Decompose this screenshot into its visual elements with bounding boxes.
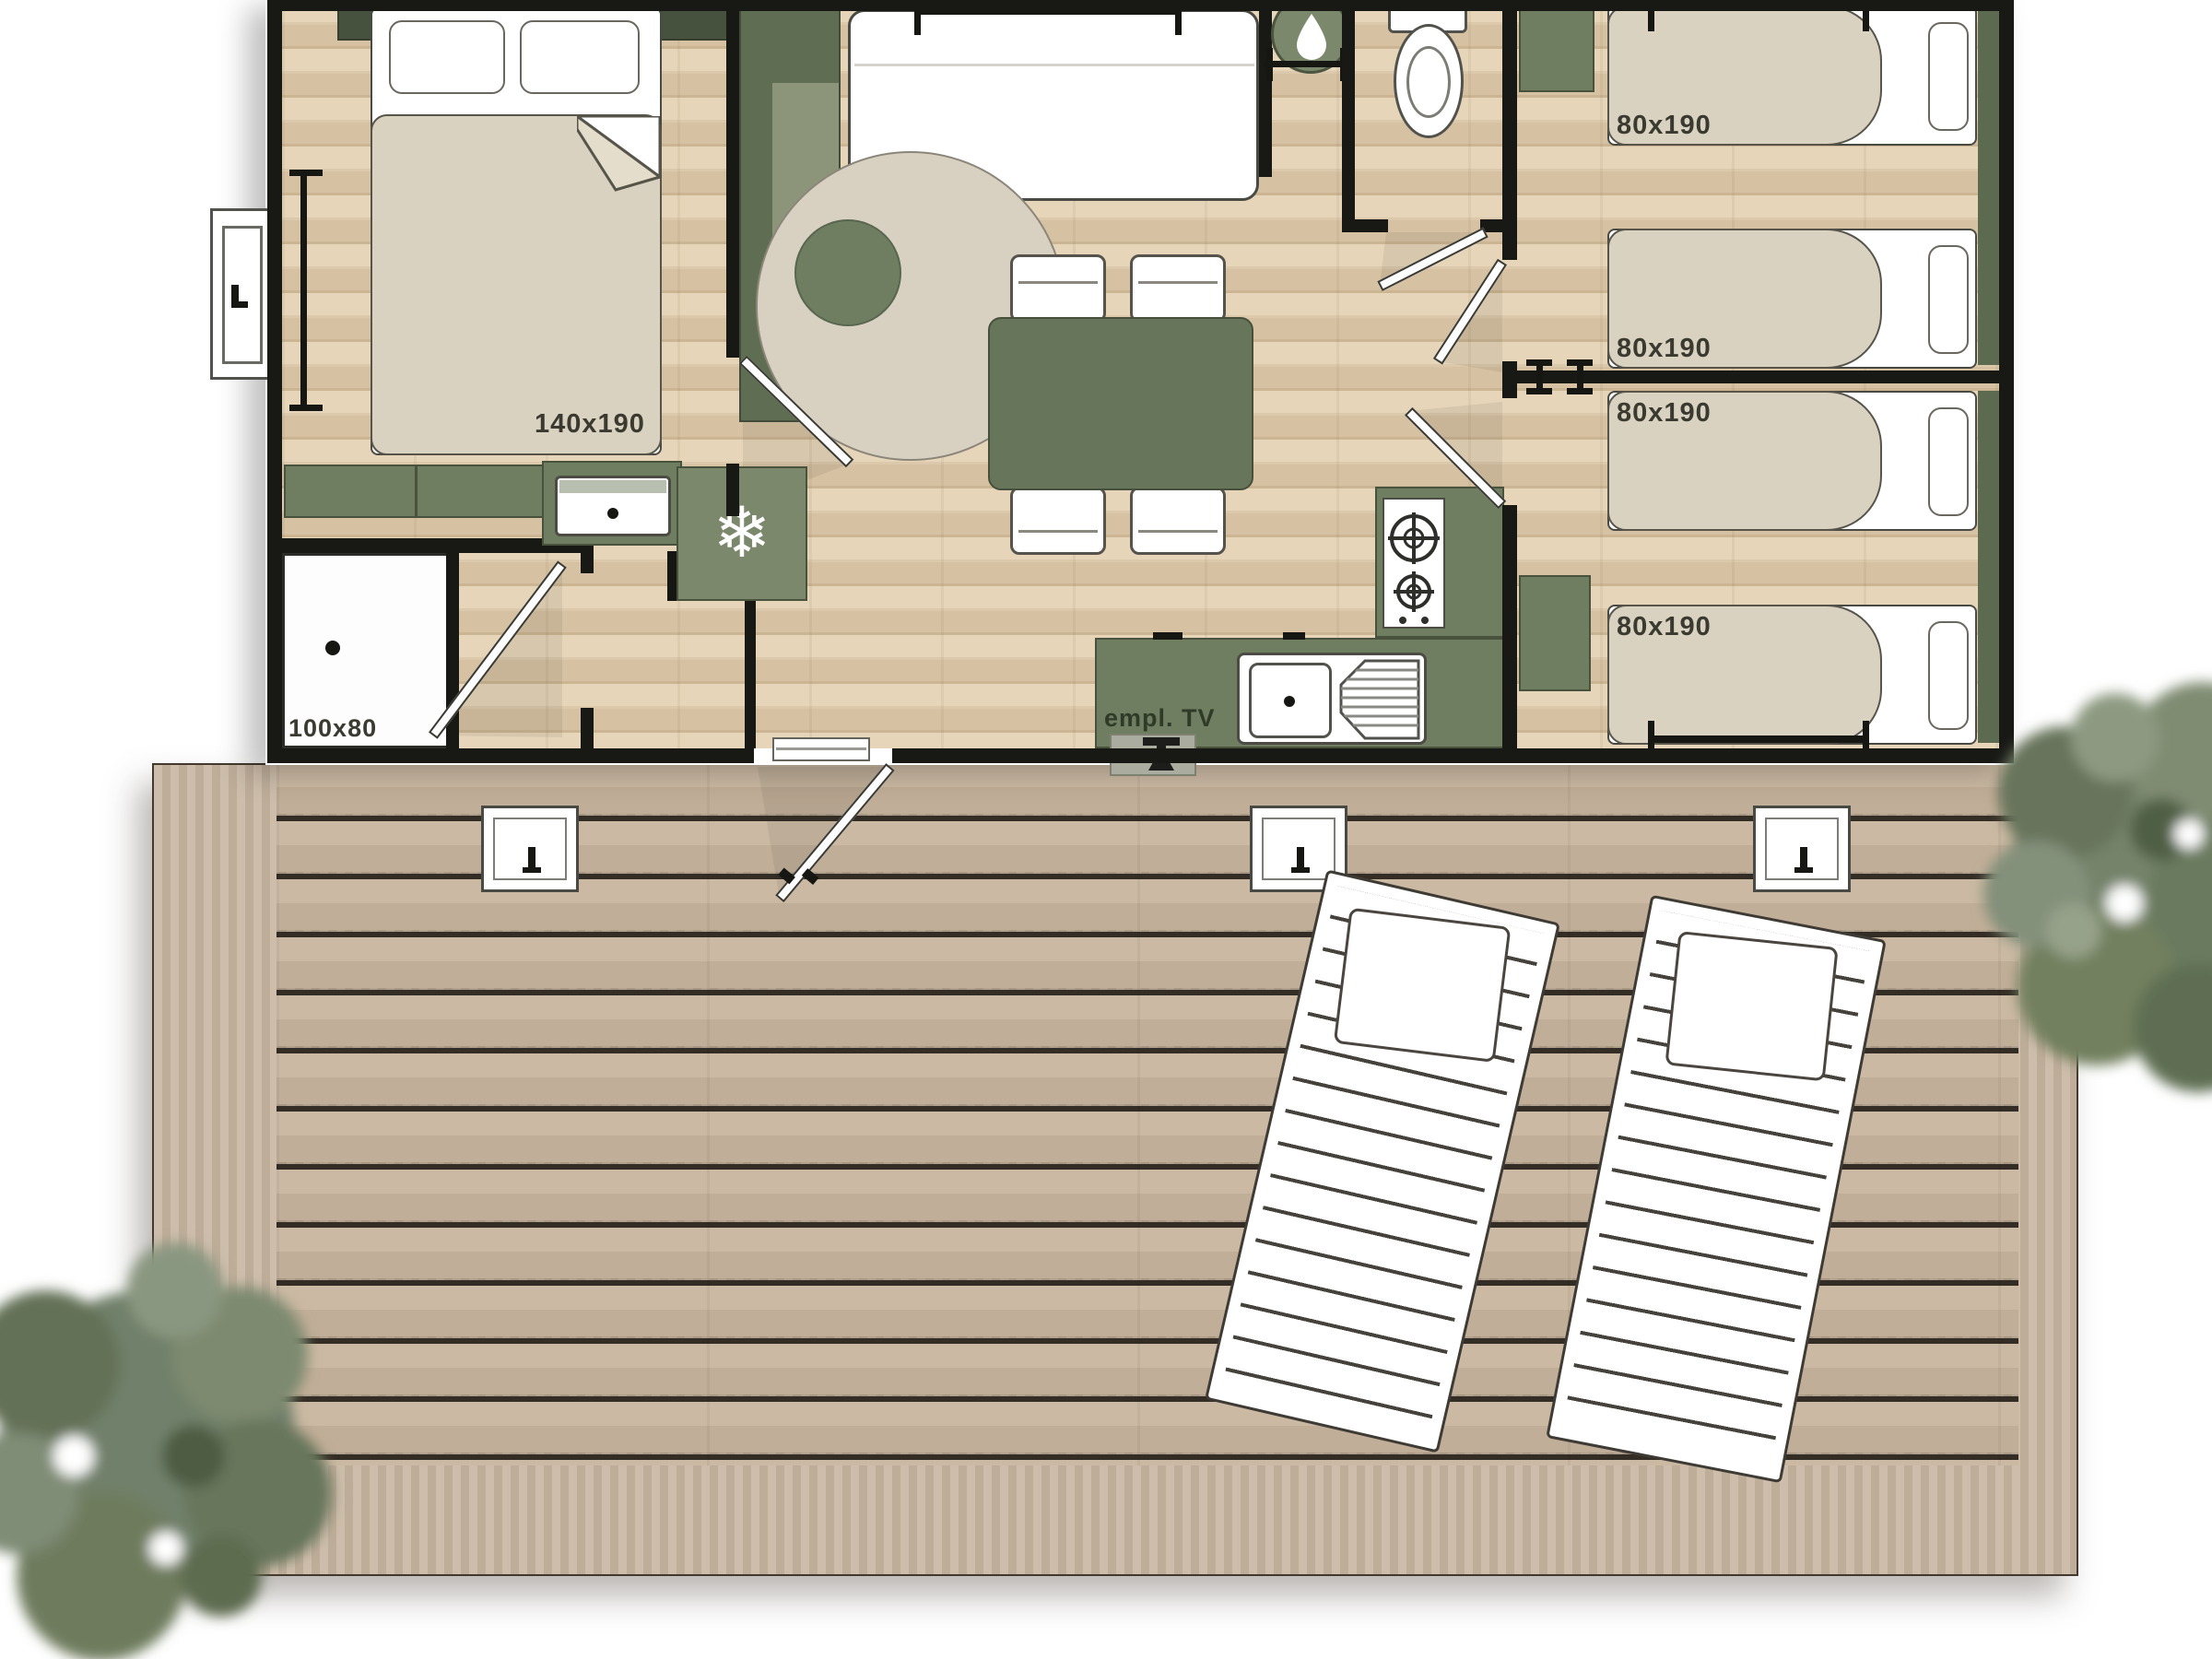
bed-size-label: 80x190	[1617, 334, 1712, 364]
toilet-icon	[1388, 2, 1467, 140]
shower-drain-icon	[325, 641, 340, 655]
bed-pillow	[1928, 22, 1969, 131]
sofa-seam	[854, 64, 1254, 66]
entry-wall-stub	[745, 601, 756, 748]
fridge: ❄	[677, 466, 807, 601]
window-handle-icon	[231, 301, 248, 308]
duvet-fold	[577, 116, 660, 194]
bed-pillow	[1928, 407, 1969, 516]
fridge-door-mark	[667, 551, 677, 601]
single-bed: 80x190	[1607, 229, 1977, 369]
wardrobe-divider	[415, 466, 418, 516]
bedside-cabinet	[1519, 7, 1594, 92]
counter-handle	[1283, 632, 1305, 640]
wardrobe	[284, 465, 551, 518]
gas-burner-icon	[1382, 498, 1445, 629]
vanity-unit	[542, 461, 682, 546]
wing-wall	[1502, 505, 1517, 748]
bathroom-door-jamb	[581, 708, 594, 748]
counter-handle	[1153, 632, 1182, 640]
shower: 100x80	[282, 553, 450, 748]
sink-drain-icon	[1284, 696, 1295, 707]
dining-chair	[1010, 254, 1106, 323]
bedroom-partition-wall	[726, 0, 739, 358]
master-bed-pillow	[389, 20, 505, 94]
sink-drain-icon	[607, 508, 618, 519]
bedroom-partition-stub	[726, 464, 739, 516]
exterior-wall-bottom	[267, 748, 754, 763]
window-symbol	[1648, 721, 1869, 752]
hob-unit	[1375, 487, 1504, 638]
tree-icon	[0, 1180, 378, 1659]
window-symbol	[1265, 48, 1349, 81]
heater-nook-wall	[1259, 0, 1272, 177]
exterior-wall-left	[267, 0, 282, 763]
floor-plan: 140x190 100x80 ❄	[0, 0, 2212, 1659]
sink-basin-icon	[555, 476, 671, 536]
wc-wall	[1342, 219, 1388, 232]
wall-break-symbol	[1567, 359, 1593, 394]
wc-wall	[1342, 0, 1355, 232]
dining-chair	[1130, 487, 1226, 555]
window-icon	[210, 208, 275, 380]
dining-chair	[1010, 487, 1106, 555]
bed-size-label: 80x190	[1617, 398, 1712, 429]
bed-size-label: 80x190	[1617, 612, 1712, 642]
single-bed: 80x190	[1607, 391, 1977, 531]
bed-pillow	[1928, 245, 1969, 354]
exterior-wall-top	[267, 0, 2014, 11]
bed-size-label: 80x190	[1617, 111, 1712, 141]
master-bed-pillow	[520, 20, 640, 94]
exterior-wall-bottom	[892, 748, 2014, 763]
master-bed-size-label: 140x190	[535, 409, 645, 440]
wing-wall	[1502, 0, 1517, 260]
shower-size-label: 100x80	[288, 714, 377, 743]
snowflake-icon: ❄	[678, 468, 806, 599]
dining-table	[988, 317, 1253, 490]
drainer-icon	[1335, 657, 1420, 742]
kitchen-sink	[1237, 653, 1427, 745]
dining-chair	[1130, 254, 1226, 323]
tree-icon	[1926, 599, 2212, 1171]
window-symbol	[289, 170, 323, 411]
sink-faucet-strip	[559, 480, 666, 493]
entry-threshold	[772, 737, 870, 761]
tv-spot-label: empl. TV	[1104, 704, 1216, 733]
bedside-cabinet	[1519, 575, 1591, 691]
window-frame	[222, 226, 263, 364]
wall-break-symbol	[1526, 359, 1552, 394]
rug-accent-circle	[794, 219, 901, 326]
